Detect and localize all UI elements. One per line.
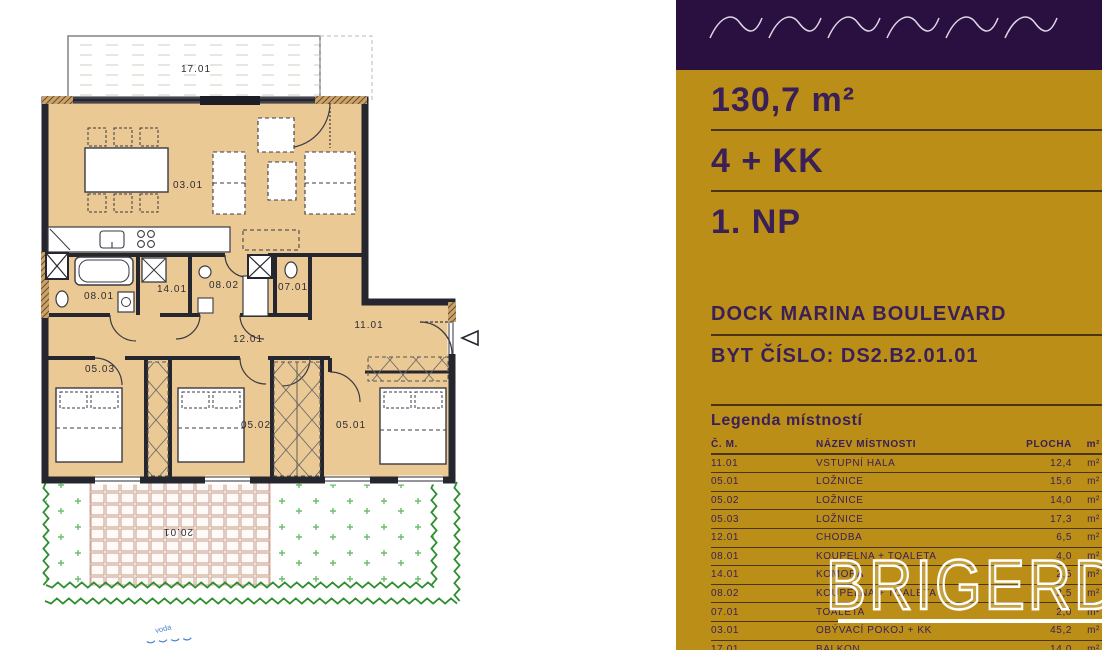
room-area-unit: m²: [1072, 476, 1102, 487]
col-header-name: NÁZEV MÍSTNOSTI: [816, 439, 1020, 450]
room-name: KOMORA: [816, 569, 1020, 580]
room-area: 12,4: [1020, 458, 1072, 469]
room-area: 45,2: [1020, 625, 1072, 636]
legend-row: 05.03 LOŽNICE 17,3 m²: [711, 510, 1102, 529]
room-name: VSTUPNÍ HALA: [816, 458, 1020, 469]
apartment-area: 130,7 m²: [711, 70, 1102, 129]
room-area-unit: m²: [1072, 569, 1102, 580]
project-name: DOCK MARINA BOULEVARD: [711, 293, 1102, 334]
room-code: 05.01: [711, 476, 816, 487]
apartment-layout: 4 + KK: [711, 131, 1102, 190]
legend-rows: 11.01 VSTUPNÍ HALA 12,4 m² 05.01 LOŽNICE…: [711, 455, 1102, 650]
legend-title: Legenda místností: [711, 406, 1102, 436]
room-area: 4,0: [1020, 551, 1072, 562]
page: 17.01 20.01 voda: [0, 0, 1102, 650]
room-area: 6,5: [1020, 532, 1072, 543]
room-area: 2,5: [1020, 569, 1072, 580]
legend-row: 05.02 LOŽNICE 14,0 m²: [711, 492, 1102, 511]
room-area: 14,0: [1020, 495, 1072, 506]
legend-row: 14.01 KOMORA 2,5 m²: [711, 566, 1102, 585]
legend-row: 07.01 TOALETA 2,0 m²: [711, 603, 1102, 622]
col-header-area: PLOCHA: [1020, 439, 1072, 450]
room-area-unit: m²: [1072, 644, 1102, 650]
toilet-icon: [56, 291, 68, 307]
room-name: KOUPELNA + TOALETA: [816, 551, 1020, 562]
col-header-code: Č. M.: [711, 439, 816, 450]
room-area-unit: m²: [1072, 625, 1102, 636]
info-panel: 130,7 m² 4 + KK 1. NP DOCK MARINA BOULEV…: [676, 0, 1102, 650]
waves-icon: [708, 6, 1078, 62]
balcony-area: 17.01: [68, 36, 372, 100]
room-code: 08.01: [711, 551, 816, 562]
room-label-wc: 07.01: [278, 282, 308, 293]
shower-icon: [243, 276, 268, 316]
legend-row: 08.02 KOUPELNA + TOALETA 2,5 m²: [711, 585, 1102, 604]
room-name: LOŽNICE: [816, 495, 1020, 506]
room-label-bed1: 05.01: [336, 420, 366, 431]
header-band: [676, 0, 1102, 70]
room-name: LOŽNICE: [816, 476, 1020, 487]
water-waves-icon: [147, 631, 192, 650]
legend-row: 03.01 OBÝVACÍ POKOJ + KK 45,2 m²: [711, 622, 1102, 641]
room-label-corridor: 12.01: [233, 334, 263, 345]
col-header-unit: m²: [1072, 439, 1102, 450]
room-area: 17,3: [1020, 514, 1072, 525]
toilet2-icon: [285, 262, 297, 278]
room-label-living: 03.01: [173, 180, 203, 191]
floor-plan: 17.01 20.01 voda: [0, 0, 676, 650]
room-label-bed3: 05.03: [85, 364, 115, 375]
room-area-unit: m²: [1072, 514, 1102, 525]
room-name: TOALETA: [816, 607, 1020, 618]
armchair: [258, 118, 294, 152]
entrance-arrow-icon: [462, 331, 478, 345]
unit-number: BYT ČÍSLO: DS2.B2.01.01: [711, 336, 1102, 378]
apartment-floor: 1. NP: [711, 192, 1102, 251]
room-name: BALKON: [816, 644, 1020, 650]
room-code: 12.01: [711, 532, 816, 543]
water-note: voda: [144, 618, 192, 649]
water-note-label: voda: [154, 622, 173, 635]
room-name: OBÝVACÍ POKOJ + KK: [816, 625, 1020, 636]
room-label-bed2: 05.02: [241, 420, 271, 431]
room-name: LOŽNICE: [816, 514, 1020, 525]
room-code: 17.01: [711, 644, 816, 650]
room-code: 14.01: [711, 569, 816, 580]
room-code: 11.01: [711, 458, 816, 469]
legend-row: 05.01 LOŽNICE 15,6 m²: [711, 473, 1102, 492]
room-area-unit: m²: [1072, 607, 1102, 618]
room-code: 05.03: [711, 514, 816, 525]
room-code: 03.01: [711, 625, 816, 636]
legend-row: 12.01 CHODBA 6,5 m²: [711, 529, 1102, 548]
room-name: KOUPELNA + TOALETA: [816, 588, 1020, 599]
legend-header-row: Č. M. NÁZEV MÍSTNOSTI PLOCHA m²: [711, 436, 1102, 455]
coffee-table: [268, 162, 296, 200]
room-area: 2,0: [1020, 607, 1072, 618]
room-label-hall: 11.01: [354, 320, 383, 331]
room-area-unit: m²: [1072, 532, 1102, 543]
room-label-bath2: 08.02: [209, 280, 239, 291]
panel-content: 130,7 m² 4 + KK 1. NP DOCK MARINA BOULEV…: [711, 70, 1102, 650]
room-label-balcony: 17.01: [181, 64, 211, 75]
legend-row: 11.01 VSTUPNÍ HALA 12,4 m²: [711, 455, 1102, 474]
floor-plan-drawing: 17.01 20.01 voda: [0, 0, 676, 650]
room-code: 08.02: [711, 588, 816, 599]
legend-row: 17.01 BALKON 14,0 m²: [711, 641, 1102, 650]
washbasin2-icon: [199, 266, 211, 278]
room-area-unit: m²: [1072, 551, 1102, 562]
room-area-unit: m²: [1072, 458, 1102, 469]
room-code: 07.01: [711, 607, 816, 618]
room-area: 2,5: [1020, 588, 1072, 599]
room-area-unit: m²: [1072, 495, 1102, 506]
room-area-unit: m²: [1072, 588, 1102, 599]
room-area: 15,6: [1020, 476, 1072, 487]
room-name: CHODBA: [816, 532, 1020, 543]
room-code: 05.02: [711, 495, 816, 506]
room-label-storage: 14.01: [157, 284, 187, 295]
room-label-bath1: 08.01: [84, 291, 114, 302]
room-label-garden: 20.01: [163, 526, 193, 537]
dining-table: [85, 148, 168, 192]
legend-row: 08.01 KOUPELNA + TOALETA 4,0 m²: [711, 548, 1102, 567]
room-area: 14,0: [1020, 644, 1072, 650]
garden-area: 20.01: [43, 482, 459, 604]
